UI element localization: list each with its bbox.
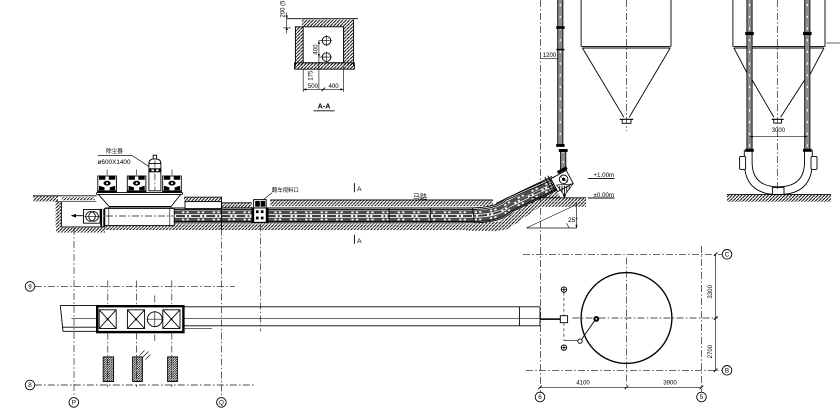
svg-text:A-A: A-A [318,102,331,111]
svg-text:P: P [72,400,76,407]
svg-text:8: 8 [28,382,32,389]
svg-text:B: B [725,368,729,375]
svg-text:400: 400 [329,83,340,90]
svg-text:4100: 4100 [576,379,590,386]
svg-text:175: 175 [307,70,314,81]
svg-text:3900: 3900 [663,379,677,386]
svg-text:翻车视料口: 翻车视料口 [272,186,299,194]
svg-text:Q: Q [219,400,224,407]
svg-text:除尘器: 除尘器 [106,147,123,155]
svg-text:马路: 马路 [413,192,427,201]
svg-text:A: A [357,238,362,245]
svg-text:ø600X1400: ø600X1400 [98,159,131,166]
svg-text:6: 6 [538,394,542,401]
svg-text:3300: 3300 [707,284,714,298]
svg-text:400: 400 [313,44,320,55]
svg-text:200 (5: 200 (5 [281,0,287,18]
svg-text:500: 500 [308,83,319,90]
svg-text:3000: 3000 [772,128,786,134]
svg-text:5: 5 [700,394,704,401]
svg-text:2700: 2700 [707,344,714,358]
svg-text:1200: 1200 [543,53,557,59]
svg-text:9: 9 [28,284,32,291]
svg-text:A: A [357,186,362,193]
svg-text:25°: 25° [568,216,578,224]
svg-text:C: C [725,252,730,259]
